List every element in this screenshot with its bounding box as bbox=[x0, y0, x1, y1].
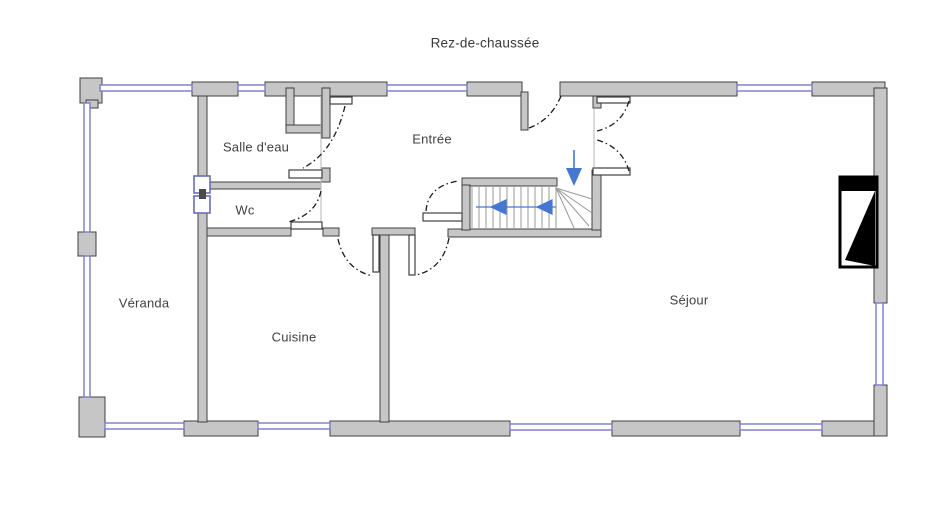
window-glazing bbox=[105, 423, 184, 429]
duct-box-wall bbox=[322, 88, 330, 138]
door-frame bbox=[423, 213, 462, 221]
door-frame bbox=[291, 222, 322, 229]
wall-corner-bottom-left bbox=[79, 397, 105, 437]
window-glazing bbox=[84, 256, 90, 397]
room-label-entree: Entrée bbox=[412, 132, 452, 147]
fireplace-icon bbox=[840, 177, 877, 267]
window-glazing bbox=[387, 85, 467, 91]
wall-stair-south bbox=[448, 229, 601, 237]
room-label-sejour: Séjour bbox=[670, 293, 709, 308]
door-swing-arc bbox=[597, 140, 629, 171]
door-frame bbox=[289, 170, 322, 178]
wall-cuisine-sejour-divider bbox=[380, 235, 389, 422]
door-swing-arc bbox=[426, 181, 458, 211]
wall-corner-top-left bbox=[80, 78, 102, 103]
wall-veranda-divider bbox=[198, 96, 207, 176]
wall-left-pier bbox=[78, 232, 96, 256]
wall-bottom bbox=[330, 421, 510, 436]
window-glazing bbox=[84, 103, 90, 232]
stair-entry-arrow bbox=[566, 150, 582, 186]
window-glazing bbox=[100, 85, 192, 91]
window-glazing bbox=[740, 424, 822, 430]
door-swing-arc bbox=[597, 101, 629, 131]
wall-bottom bbox=[612, 421, 740, 436]
interior-window-symbol bbox=[194, 176, 210, 213]
wall-stair-north bbox=[462, 178, 557, 186]
walls bbox=[78, 78, 887, 437]
wall-top bbox=[560, 82, 737, 96]
wall-right bbox=[874, 385, 887, 436]
stair-direction-arrow bbox=[537, 200, 552, 214]
wall-veranda-divider bbox=[198, 213, 207, 422]
door-swing-arc bbox=[416, 238, 449, 275]
door-swing-arc bbox=[529, 96, 561, 128]
window-glazing bbox=[510, 424, 612, 430]
wall-stair-east bbox=[592, 170, 601, 230]
window-glazing bbox=[737, 85, 812, 91]
entry-door-leaf bbox=[521, 92, 528, 130]
door-jamb bbox=[597, 97, 630, 103]
room-label-salle-deau: Salle d'eau bbox=[223, 140, 289, 155]
wall-stair-west bbox=[462, 185, 470, 230]
window-glazing bbox=[238, 85, 265, 91]
stair-walk-line bbox=[476, 200, 556, 214]
door-frame bbox=[330, 97, 352, 104]
wall-salledeau-wc-divider bbox=[207, 182, 321, 189]
door-jamb bbox=[373, 235, 379, 272]
room-boundary-lines bbox=[321, 96, 594, 228]
floor-plan: Rez-de-chaussée Salle d'eau Wc Entrée Vé… bbox=[0, 0, 948, 521]
door-swing-arc bbox=[288, 191, 321, 222]
door-jamb bbox=[593, 168, 630, 175]
wall-wc-south bbox=[207, 228, 291, 236]
wall-door-lintel bbox=[372, 228, 415, 235]
staircase bbox=[472, 150, 592, 228]
wall-wc-south bbox=[323, 228, 339, 236]
wall-top bbox=[192, 82, 238, 96]
wall-bottom bbox=[184, 421, 258, 436]
window-glazing bbox=[258, 423, 330, 429]
door-swing-arcs bbox=[288, 96, 629, 276]
room-label-wc: Wc bbox=[235, 203, 254, 218]
door-swing-arc bbox=[338, 239, 373, 276]
room-label-cuisine: Cuisine bbox=[272, 330, 317, 345]
floor-plan-drawing bbox=[0, 0, 948, 521]
room-label-veranda: Véranda bbox=[119, 296, 170, 311]
door-jamb bbox=[409, 235, 415, 275]
wall-top bbox=[467, 82, 522, 96]
window-glazing bbox=[876, 303, 883, 385]
plan-title: Rez-de-chaussée bbox=[431, 36, 540, 51]
